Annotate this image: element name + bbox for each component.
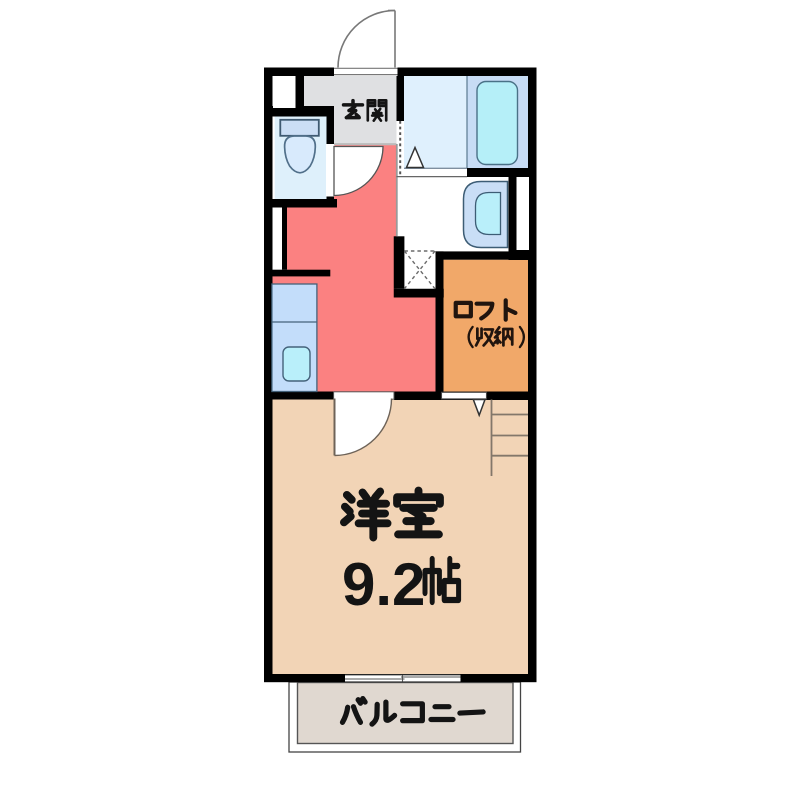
svg-text:9.2: 9.2 [342,551,425,618]
